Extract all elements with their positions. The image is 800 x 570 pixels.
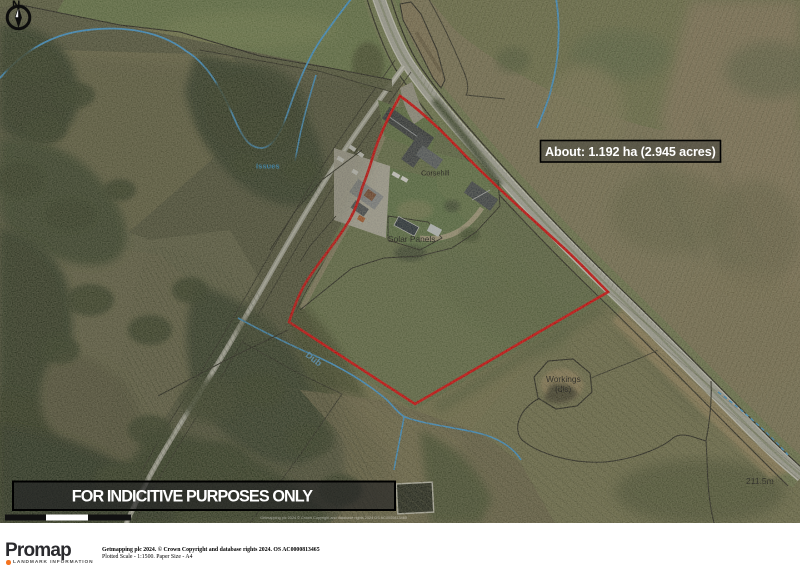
svg-text:FOR INDICITIVE PURPOSES ONLY: FOR INDICITIVE PURPOSES ONLY — [72, 488, 314, 506]
svg-text:N: N — [12, 0, 20, 12]
svg-text:About: 1.192 ha (2.945 acres): About: 1.192 ha (2.945 acres) — [545, 145, 716, 159]
svg-text:Getmapping plc 2024 © Crown Co: Getmapping plc 2024 © Crown Copyright an… — [260, 516, 407, 520]
